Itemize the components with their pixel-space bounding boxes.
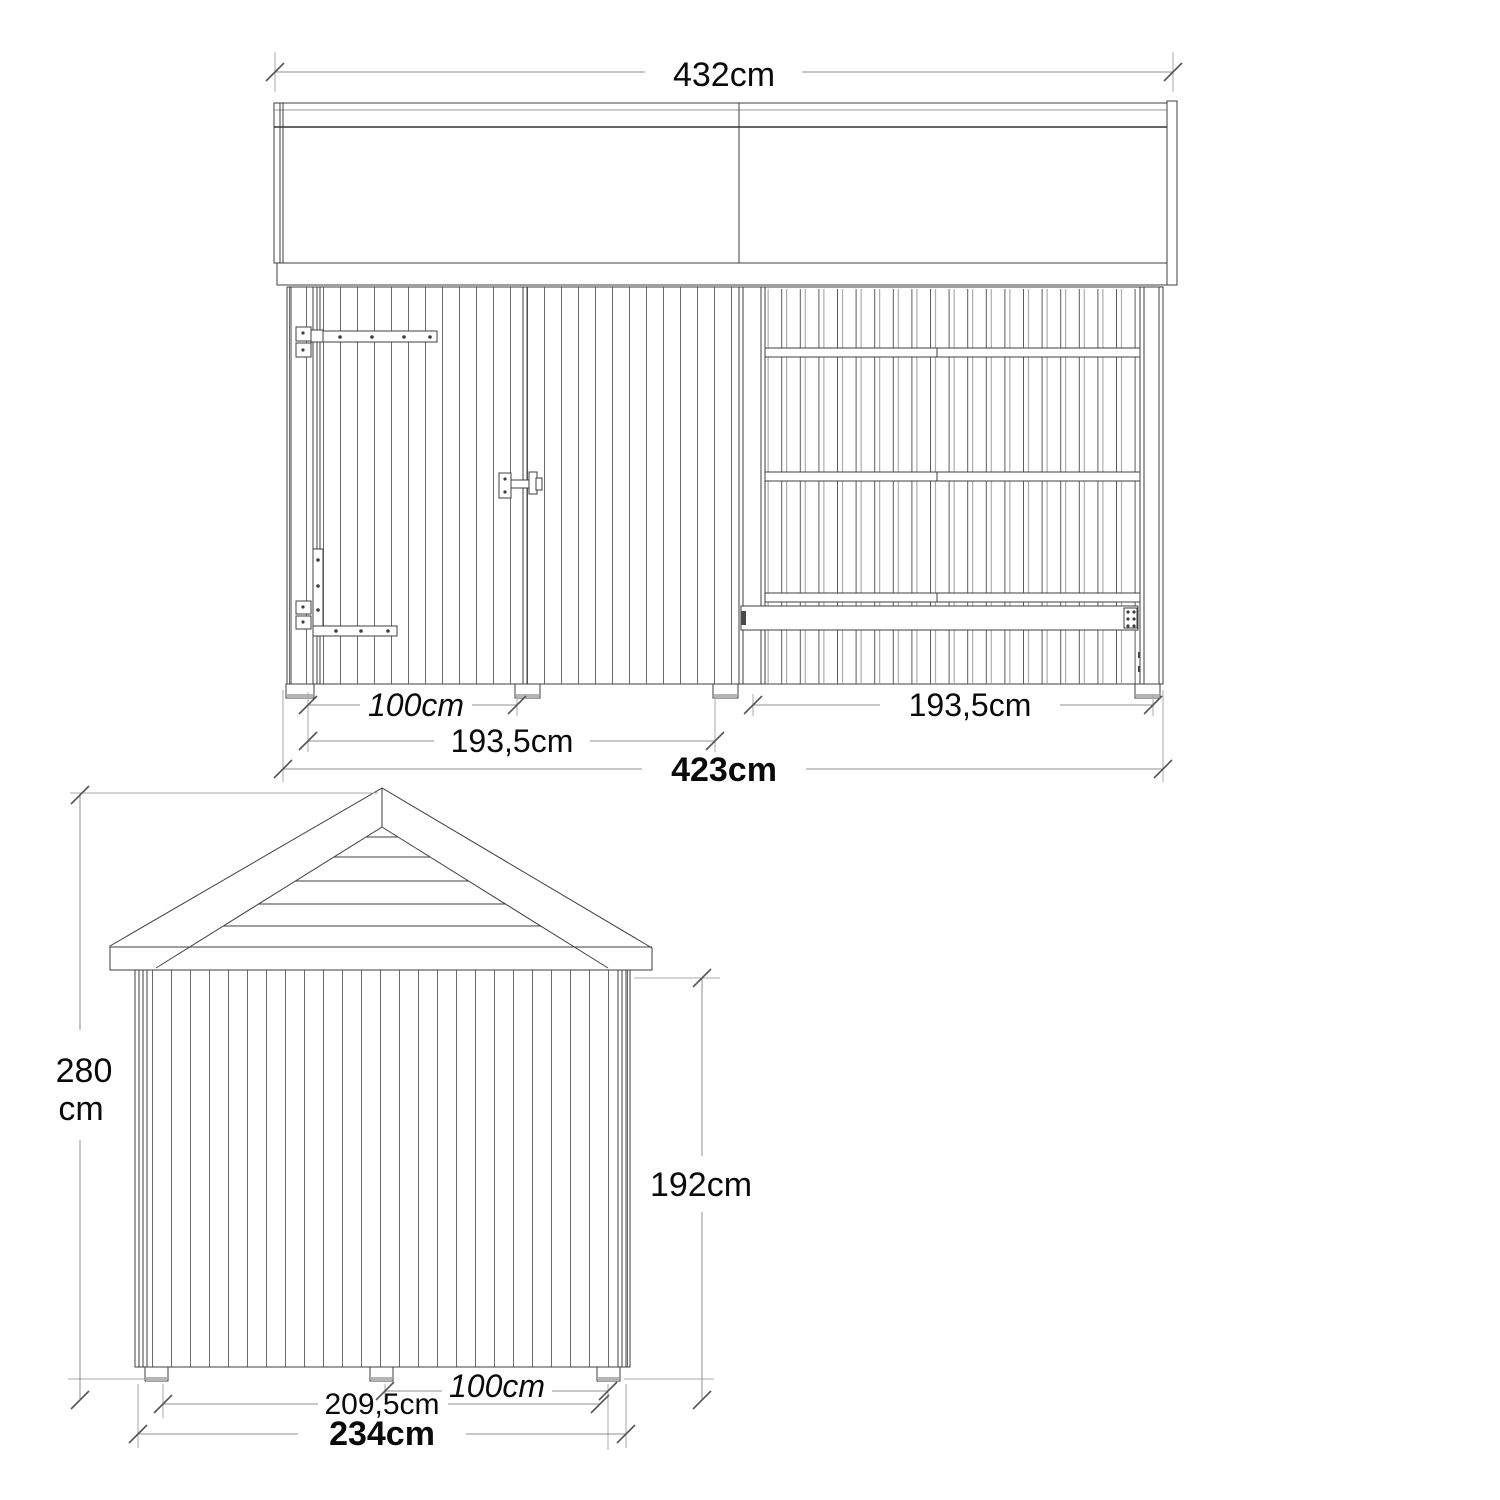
right-post (1140, 287, 1163, 684)
foundation-feet-side (145, 1367, 620, 1381)
roof-right-edge-board (1167, 101, 1177, 285)
open-bay (741, 289, 1142, 684)
dim-label-total-height-unit: cm (58, 1090, 103, 1128)
dim-roof-total-width: 432cm (266, 52, 1182, 94)
dim-label-total-depth: 234cm (329, 1415, 435, 1453)
dim-label-total-height-value: 280 (56, 1052, 113, 1090)
shelf-rail-middle (765, 472, 1140, 481)
dim-label-total-width: 423cm (671, 751, 777, 789)
roof-front (274, 101, 1177, 285)
dim-label-left-bay-width: 193,5cm (451, 723, 574, 759)
dim-wall-height: 192cm (624, 969, 752, 1409)
shelf-rail-top (765, 348, 1140, 357)
dim-left-bay-width: 193,5cm (299, 698, 724, 759)
shed-dimension-drawing: 432cm (0, 0, 1500, 1500)
front-elevation: 432cm (266, 52, 1182, 789)
dim-label-bay-depth: 100cm (449, 1368, 545, 1404)
dim-label-wall-height: 192cm (650, 1166, 752, 1204)
side-elevation: 280 cm 192cm 100cm (56, 786, 752, 1453)
dim-label-door-width: 100cm (368, 687, 464, 723)
dim-right-bay-width: 193,5cm (744, 687, 1162, 723)
roof-fascia (277, 263, 1167, 285)
dim-label-roof-total-width: 432cm (673, 56, 775, 94)
bottom-plank (741, 606, 1138, 630)
dim-label-right-bay-width: 193,5cm (909, 687, 1032, 723)
roof-side (110, 788, 652, 970)
technical-drawing-page: 432cm (0, 0, 1500, 1500)
wall-side (135, 970, 630, 1367)
shelf-rail-lower (765, 593, 1140, 602)
